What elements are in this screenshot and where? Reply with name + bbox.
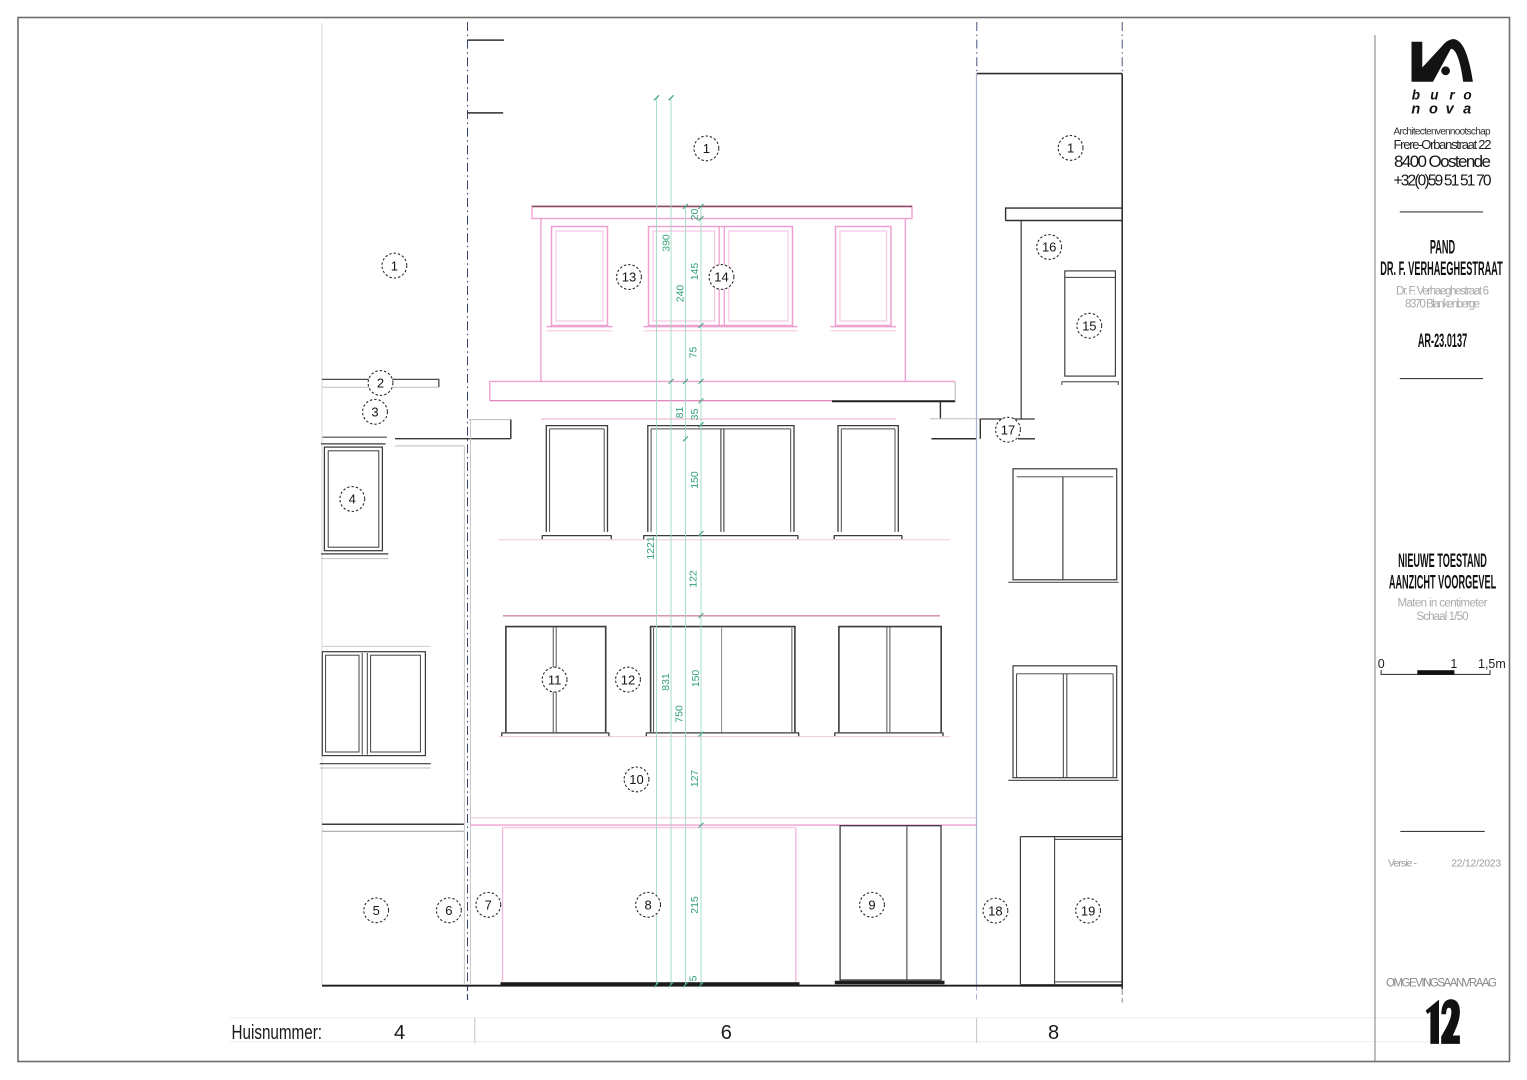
svg-text:15: 15 <box>1082 318 1096 333</box>
svg-text:NIEUWE TOESTAND: NIEUWE TOESTAND <box>1398 550 1487 572</box>
svg-text:4: 4 <box>394 1022 405 1044</box>
svg-text:Dr. F. Verhaeghestraat 6: Dr. F. Verhaeghestraat 6 <box>1396 286 1489 298</box>
svg-text:10: 10 <box>629 772 643 787</box>
svg-text:9: 9 <box>868 898 875 913</box>
svg-text:1: 1 <box>391 258 398 273</box>
svg-text:8400 Oostende: 8400 Oostende <box>1394 152 1491 171</box>
svg-text:831: 831 <box>660 673 672 691</box>
svg-text:1: 1 <box>1067 141 1074 156</box>
svg-text:OMGEVINGSAANVRAAG: OMGEVINGSAANVRAAG <box>1386 978 1497 990</box>
svg-text:o: o <box>1463 87 1471 102</box>
svg-text:+32(0)59 51 51 70: +32(0)59 51 51 70 <box>1394 173 1492 190</box>
svg-text:17: 17 <box>1001 422 1015 437</box>
svg-text:8: 8 <box>644 898 651 913</box>
svg-text:8370 Blankenberge: 8370 Blankenberge <box>1405 298 1480 310</box>
svg-text:5: 5 <box>688 975 700 981</box>
svg-text:AR-23.0137: AR-23.0137 <box>1418 330 1467 352</box>
svg-text:75: 75 <box>687 347 699 359</box>
svg-text:16: 16 <box>1042 240 1056 255</box>
svg-text:150: 150 <box>689 471 701 489</box>
svg-text:22/12/2023: 22/12/2023 <box>1451 858 1501 870</box>
svg-text:0: 0 <box>1378 657 1385 671</box>
svg-text:12: 12 <box>621 672 635 687</box>
svg-text:35: 35 <box>689 409 701 421</box>
svg-text:127: 127 <box>689 770 701 788</box>
svg-text:b: b <box>1412 87 1420 102</box>
svg-text:4: 4 <box>349 492 356 507</box>
svg-text:6: 6 <box>445 903 452 918</box>
svg-text:145: 145 <box>689 263 701 281</box>
svg-text:Frere-Orbanstraat 22: Frere-Orbanstraat 22 <box>1394 137 1492 152</box>
svg-text:a: a <box>1463 102 1471 118</box>
svg-text:8: 8 <box>1048 1022 1059 1044</box>
svg-text:v: v <box>1446 102 1455 118</box>
svg-text:r: r <box>1449 87 1455 102</box>
svg-text:1,5m: 1,5m <box>1478 657 1506 671</box>
svg-text:215: 215 <box>689 896 701 914</box>
svg-text:18: 18 <box>988 903 1002 918</box>
svg-text:o: o <box>1429 102 1438 118</box>
svg-text:n: n <box>1411 102 1420 118</box>
svg-text:1: 1 <box>703 141 710 156</box>
svg-text:6: 6 <box>721 1022 732 1044</box>
svg-text:122: 122 <box>687 570 699 588</box>
svg-text:1221: 1221 <box>645 536 657 560</box>
svg-text:240: 240 <box>674 285 686 303</box>
svg-text:Maten in centimeter: Maten in centimeter <box>1398 597 1488 609</box>
svg-text:DR. F. VERHAEGHESTRAAT: DR. F. VERHAEGHESTRAAT <box>1380 258 1503 280</box>
svg-text:Versie -: Versie - <box>1388 858 1418 870</box>
svg-text:13: 13 <box>622 270 636 285</box>
svg-text:3: 3 <box>371 405 378 420</box>
svg-text:Huisnummer:: Huisnummer: <box>232 1022 323 1044</box>
svg-text:AANZICHT VOORGEVEL: AANZICHT VOORGEVEL <box>1389 572 1496 594</box>
svg-text:2: 2 <box>377 376 384 391</box>
svg-text:750: 750 <box>673 705 685 723</box>
svg-text:5: 5 <box>373 903 380 918</box>
svg-text:14: 14 <box>714 270 728 285</box>
svg-text:1: 1 <box>1450 657 1457 671</box>
svg-text:PAND: PAND <box>1430 237 1455 259</box>
svg-text:Schaal 1/50: Schaal 1/50 <box>1417 611 1469 623</box>
svg-text:11: 11 <box>548 672 562 687</box>
svg-text:390: 390 <box>660 234 672 252</box>
svg-text:19: 19 <box>1081 903 1095 918</box>
svg-text:150: 150 <box>690 670 702 688</box>
svg-text:7: 7 <box>485 898 492 913</box>
svg-text:81: 81 <box>674 407 686 419</box>
svg-text:20: 20 <box>689 209 701 221</box>
svg-text:u: u <box>1430 87 1439 102</box>
